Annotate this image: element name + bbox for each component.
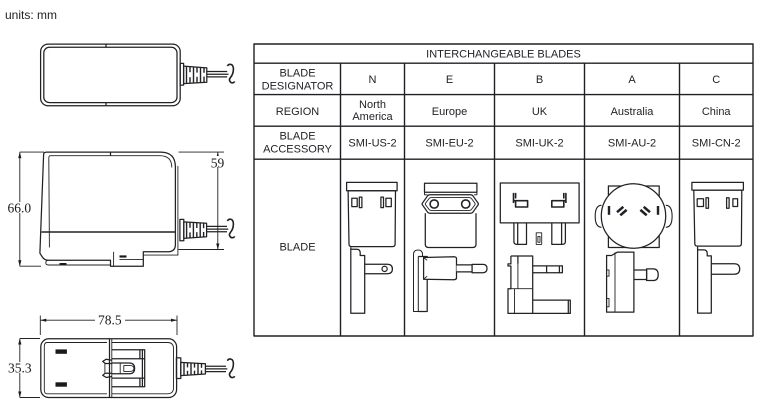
svg-text:ACCESSORY: ACCESSORY xyxy=(263,144,333,156)
svg-text:UK: UK xyxy=(532,106,548,118)
svg-text:units: mm: units: mm xyxy=(5,8,57,22)
svg-text:REGION: REGION xyxy=(276,106,319,118)
svg-text:America: America xyxy=(352,111,393,123)
svg-text:SMI-EU-2: SMI-EU-2 xyxy=(425,138,473,150)
svg-text:C: C xyxy=(712,74,720,86)
svg-text:SMI-US-2: SMI-US-2 xyxy=(348,138,396,150)
svg-text:78.5: 78.5 xyxy=(98,313,122,328)
svg-text:INTERCHANGEABLE BLADES: INTERCHANGEABLE BLADES xyxy=(426,49,581,61)
svg-text:China: China xyxy=(702,106,732,118)
svg-text:SMI-UK-2: SMI-UK-2 xyxy=(515,138,563,150)
svg-text:BLADE: BLADE xyxy=(279,242,315,254)
svg-text:SMI-AU-2: SMI-AU-2 xyxy=(608,138,656,150)
svg-text:BLADE: BLADE xyxy=(279,68,315,80)
svg-text:35.3: 35.3 xyxy=(8,361,32,376)
svg-text:E: E xyxy=(446,74,453,86)
svg-text:North: North xyxy=(359,99,386,111)
svg-text:B: B xyxy=(536,74,543,86)
svg-text:N: N xyxy=(369,74,377,86)
svg-text:Australia: Australia xyxy=(611,106,655,118)
svg-text:66.0: 66.0 xyxy=(8,201,32,216)
svg-text:A: A xyxy=(628,74,636,86)
svg-text:Europe: Europe xyxy=(432,106,467,118)
svg-text:59: 59 xyxy=(211,156,225,171)
svg-text:DESIGNATOR: DESIGNATOR xyxy=(262,81,334,93)
svg-text:BLADE: BLADE xyxy=(279,131,315,143)
svg-text:SMI-CN-2: SMI-CN-2 xyxy=(692,138,741,150)
